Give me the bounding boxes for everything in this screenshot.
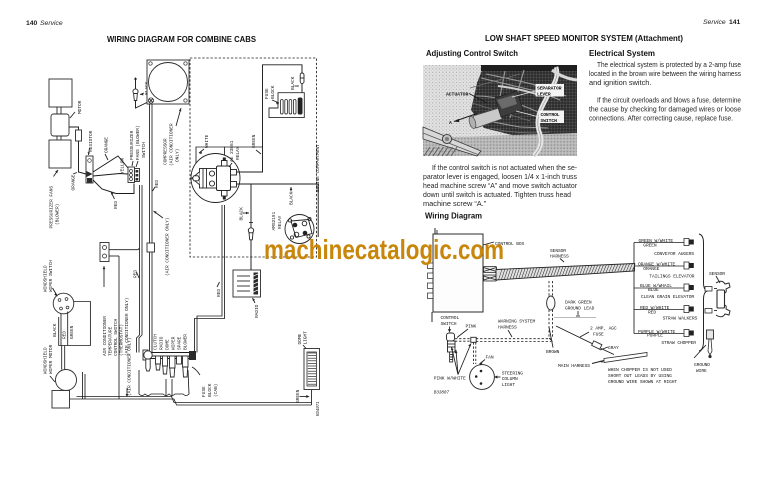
- svg-text:CLUTCH: CLUTCH: [153, 334, 159, 350]
- svg-text:SWITCH: SWITCH: [141, 142, 147, 158]
- svg-text:The electrical system is prote: The electrical system is protected by a …: [597, 60, 741, 69]
- svg-text:Adjusting Control Switch: Adjusting Control Switch: [426, 49, 518, 58]
- svg-text:BLACK: BLACK: [290, 76, 296, 90]
- svg-text:RADIO: RADIO: [159, 336, 165, 350]
- svg-text:(AIR CONDITIONER: (AIR CONDITIONER: [169, 123, 175, 166]
- svg-text:FUSE: FUSE: [264, 88, 270, 99]
- svg-text:LIGHT: LIGHT: [502, 382, 516, 388]
- svg-text:head machine screw “A” and mov: head machine screw “A” and move switch a…: [423, 181, 577, 190]
- svg-text:140: 140: [26, 20, 38, 27]
- svg-text:RED: RED: [154, 180, 160, 188]
- svg-text:STRAW WALKERS: STRAW WALKERS: [663, 315, 698, 321]
- svg-text:GROUND LEAD: GROUND LEAD: [565, 306, 595, 312]
- svg-text:LIGHT: LIGHT: [303, 331, 309, 345]
- svg-text:HARNESS: HARNESS: [498, 325, 517, 331]
- svg-text:TAILINGS ELEVATOR: TAILINGS ELEVATOR: [649, 273, 695, 279]
- svg-text:FANS (BLOWER): FANS (BLOWER): [135, 125, 141, 160]
- svg-text:GROUND WIRE SHOWN AT RIGHT: GROUND WIRE SHOWN AT RIGHT: [608, 379, 677, 385]
- svg-text:GROUND: GROUND: [694, 362, 710, 368]
- svg-text:Wiring Diagram: Wiring Diagram: [425, 212, 482, 221]
- svg-text:LEVER: LEVER: [537, 91, 551, 97]
- svg-text:ORANGE: ORANGE: [104, 137, 110, 153]
- svg-text:WIPER MOTOR: WIPER MOTOR: [48, 344, 54, 374]
- svg-text:141: 141: [729, 19, 741, 26]
- svg-text:DOME: DOME: [165, 339, 171, 350]
- svg-text:PRESSURIZER FANS: PRESSURIZER FANS: [49, 186, 55, 229]
- svg-text:ORANGE: ORANGE: [71, 174, 77, 190]
- svg-text:LOW SHAFT SPEED MONITOR SYSTEM: LOW SHAFT SPEED MONITOR SYSTEM (Attachme…: [485, 34, 683, 43]
- svg-text:CONTROL: CONTROL: [441, 315, 460, 321]
- svg-text:AIR CONDITIONER: AIR CONDITIONER: [102, 316, 108, 356]
- svg-text:FUSE: FUSE: [201, 386, 207, 397]
- svg-text:connections. After correcting: connections. After correcting cause, rep…: [589, 114, 733, 123]
- svg-text:RELAY: RELAY: [277, 215, 283, 229]
- svg-text:WINDSHIELD: WINDSHIELD: [43, 265, 49, 292]
- svg-text:YELLOW: YELLOW: [120, 158, 126, 174]
- svg-text:WINDSHIELD: WINDSHIELD: [43, 347, 49, 374]
- svg-text:machinecatalogic.com: machinecatalogic.com: [264, 234, 504, 265]
- svg-text:CLEAN GRAIN ELEVATOR: CLEAN GRAIN ELEVATOR: [641, 294, 694, 300]
- svg-text:FUSE: FUSE: [593, 332, 604, 338]
- svg-text:BLOCK: BLOCK: [270, 85, 276, 99]
- svg-text:A: A: [449, 120, 452, 126]
- svg-text:Electrical System: Electrical System: [589, 49, 655, 58]
- svg-text:BROWN: BROWN: [546, 349, 560, 355]
- svg-text:RED: RED: [216, 289, 222, 297]
- svg-text:STRAW CHOPPER: STRAW CHOPPER: [661, 340, 696, 346]
- svg-text:DOME: DOME: [297, 334, 303, 345]
- svg-text:RED: RED: [113, 201, 119, 209]
- svg-text:BLACK: BLACK: [239, 207, 245, 221]
- svg-text:parator lever is engaged, loos: parator lever is engaged, loosen 1/4 x 1…: [423, 172, 577, 181]
- svg-text:and ignition switch.: and ignition switch.: [589, 78, 651, 87]
- svg-text:ONLY): ONLY): [175, 149, 181, 162]
- svg-text:RADIO: RADIO: [254, 304, 260, 318]
- svg-text:GRAY: GRAY: [608, 345, 619, 351]
- svg-text:RED: RED: [648, 310, 656, 316]
- svg-text:HARNESS: HARNESS: [550, 254, 569, 260]
- svg-text:BLACK: BLACK: [289, 191, 295, 205]
- svg-text:R34971: R34971: [317, 401, 321, 416]
- svg-text:Service: Service: [703, 19, 726, 26]
- svg-text:PURPLE: PURPLE: [647, 333, 663, 339]
- svg-text:RESISTOR: RESISTOR: [88, 130, 94, 152]
- svg-text:machine screw “A.”: machine screw “A.”: [423, 199, 487, 208]
- svg-text:B33807: B33807: [434, 391, 450, 396]
- svg-text:SWITCH: SWITCH: [541, 118, 558, 124]
- svg-text:PINK W/WHITE: PINK W/WHITE: [434, 376, 466, 382]
- svg-text:the cause by checking for dama: the cause by checking for damaged wires …: [589, 105, 741, 114]
- svg-text:DARK GREEN: DARK GREEN: [565, 300, 592, 306]
- svg-text:TEMPERATURE: TEMPERATURE: [108, 326, 114, 356]
- svg-text:SENSOR: SENSOR: [709, 271, 725, 277]
- svg-text:down until switch is actuated.: down until switch is actuated. Tighten t…: [423, 190, 571, 199]
- svg-text:WHITE: WHITE: [204, 134, 210, 148]
- svg-text:WIPER SWITCH: WIPER SWITCH: [48, 260, 54, 292]
- svg-text:(AIR CONDITIONER ONLY): (AIR CONDITIONER ONLY): [165, 218, 171, 276]
- svg-text:MOTOR: MOTOR: [77, 100, 83, 114]
- svg-text:SENSOR: SENSOR: [550, 248, 566, 254]
- svg-text:BLOCK: BLOCK: [207, 383, 213, 397]
- svg-text:ORANGE: ORANGE: [643, 266, 659, 272]
- svg-text:(CAB): (CAB): [213, 384, 219, 397]
- svg-text:SWITCH: SWITCH: [441, 321, 457, 327]
- svg-text:BLACK: BLACK: [52, 323, 58, 337]
- svg-text:FAN: FAN: [486, 355, 494, 361]
- svg-text:SPARE: SPARE: [177, 336, 183, 350]
- svg-text:SHORT OUT LEADS BY USING: SHORT OUT LEADS BY USING: [608, 373, 672, 379]
- svg-text:If the control switch is not a: If the control switch is not actuated wh…: [432, 163, 577, 172]
- svg-text:COLUMN: COLUMN: [502, 376, 518, 382]
- svg-text:ACTUATOR: ACTUATOR: [446, 92, 468, 98]
- svg-text:WIRING DIAGRAM FOR COMBINE CAB: WIRING DIAGRAM FOR COMBINE CABS: [107, 35, 256, 44]
- svg-text:WIRE: WIRE: [696, 368, 707, 374]
- svg-text:AE 23861: AE 23861: [229, 140, 235, 162]
- svg-text:Service: Service: [40, 20, 63, 27]
- svg-text:WIPER: WIPER: [171, 336, 177, 350]
- svg-text:CONTROL SWITCH: CONTROL SWITCH: [113, 318, 119, 356]
- svg-text:RED: RED: [62, 331, 68, 339]
- svg-text:WARNING SYSTEM: WARNING SYSTEM: [498, 319, 536, 325]
- svg-text:located in the brown wire betw: located in the brown wire between the wi…: [589, 69, 741, 78]
- svg-text:GREEN: GREEN: [69, 325, 75, 339]
- svg-text:STEERING: STEERING: [502, 371, 524, 377]
- svg-text:PINK: PINK: [466, 324, 477, 330]
- svg-text:2 AMP, AGC: 2 AMP, AGC: [590, 326, 617, 332]
- svg-text:If the circuit overloads and b: If the circuit overloads and blows a fus…: [597, 96, 741, 105]
- svg-text:CONTROL: CONTROL: [541, 112, 560, 118]
- svg-text:(THERMOSTAT): (THERMOSTAT): [119, 324, 125, 356]
- svg-text:MAIN HARNESS: MAIN HARNESS: [558, 363, 590, 369]
- svg-text:BLOWER: BLOWER: [183, 334, 189, 350]
- svg-text:WHEN CHOPPER IS NOT USED: WHEN CHOPPER IS NOT USED: [608, 367, 672, 373]
- svg-text:(AIR CONDITIONER ONLY): (AIR CONDITIONER ONLY): [127, 338, 133, 396]
- svg-text:RELAY: RELAY: [235, 146, 241, 160]
- svg-text:BLUE: BLUE: [648, 287, 659, 293]
- svg-text:SEPARATOR: SEPARATOR: [537, 86, 562, 92]
- svg-text:GREEN: GREEN: [251, 134, 257, 148]
- svg-text:CONVEYOR AUGERS: CONVEYOR AUGERS: [654, 251, 694, 257]
- svg-text:AMS2191: AMS2191: [271, 212, 277, 231]
- svg-text:(BLOWER): (BLOWER): [55, 204, 61, 225]
- svg-text:COMPRESSOR: COMPRESSOR: [163, 138, 169, 165]
- svg-text:GREEN: GREEN: [643, 243, 657, 249]
- svg-text:PRESSURIZER: PRESSURIZER: [129, 130, 135, 160]
